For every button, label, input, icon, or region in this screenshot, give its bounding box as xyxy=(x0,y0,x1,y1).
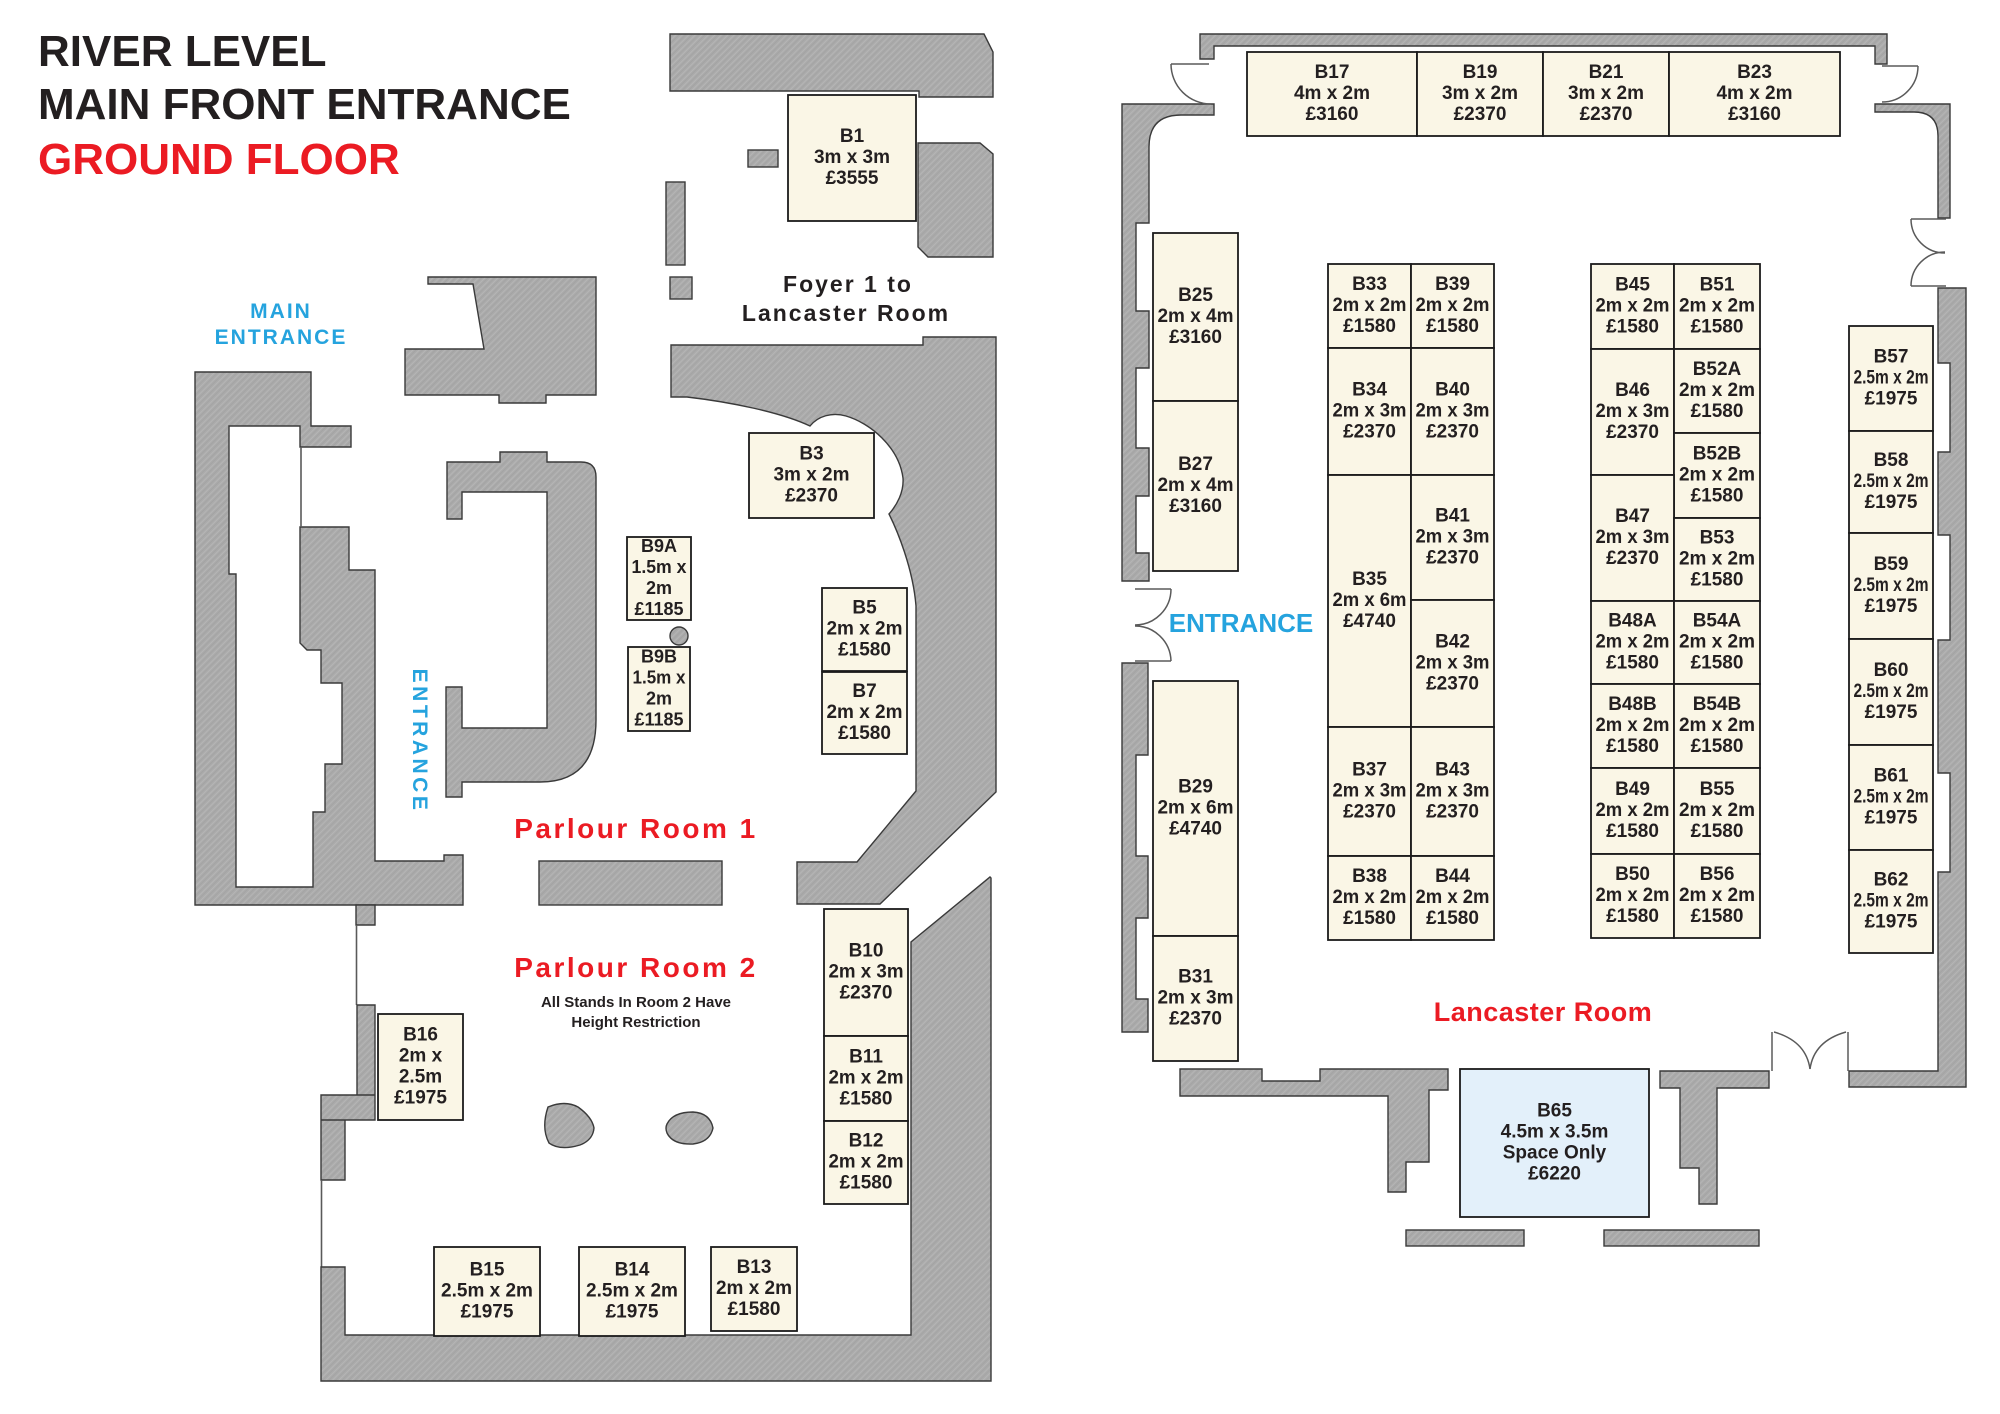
svg-text:£1580: £1580 xyxy=(840,1089,893,1110)
svg-text:B14: B14 xyxy=(615,1260,650,1281)
svg-text:2.5m x 2m: 2.5m x 2m xyxy=(441,1281,533,1302)
svg-text:B34: B34 xyxy=(1352,380,1387,401)
svg-text:2m x 3m: 2m x 3m xyxy=(1333,401,1407,422)
svg-text:2m x 2m: 2m x 2m xyxy=(826,702,902,723)
svg-text:4m x 2m: 4m x 2m xyxy=(1294,83,1370,104)
svg-text:£3160: £3160 xyxy=(1169,496,1222,517)
svg-text:£1975: £1975 xyxy=(461,1302,514,1323)
svg-text:2.5m x 2m: 2.5m x 2m xyxy=(1854,471,1929,492)
svg-text:3m x 3m: 3m x 3m xyxy=(814,147,890,168)
svg-text:2m x 2m: 2m x 2m xyxy=(1596,800,1670,821)
svg-text:B46: B46 xyxy=(1615,380,1650,401)
svg-text:RIVER LEVEL: RIVER LEVEL xyxy=(38,27,327,76)
svg-text:B37: B37 xyxy=(1352,760,1387,781)
svg-text:B13: B13 xyxy=(737,1257,772,1278)
svg-text:B17: B17 xyxy=(1315,62,1350,83)
svg-text:2m x 2m: 2m x 2m xyxy=(1679,549,1755,570)
svg-text:B60: B60 xyxy=(1874,660,1909,681)
svg-text:2.5m x 2m: 2.5m x 2m xyxy=(1854,787,1929,808)
svg-text:B21: B21 xyxy=(1589,62,1624,83)
svg-text:£6220: £6220 xyxy=(1528,1164,1581,1185)
svg-text:£1580: £1580 xyxy=(1343,316,1396,337)
svg-text:ENTRANCE: ENTRANCE xyxy=(408,669,431,814)
svg-text:3m x 2m: 3m x 2m xyxy=(773,465,849,486)
svg-text:MAIN FRONT ENTRANCE: MAIN FRONT ENTRANCE xyxy=(38,80,571,129)
svg-text:£1580: £1580 xyxy=(1691,906,1744,927)
svg-text:£1975: £1975 xyxy=(394,1088,447,1109)
svg-text:1.5m x: 1.5m x xyxy=(632,557,687,577)
svg-text:£2370: £2370 xyxy=(1426,802,1479,823)
svg-text:£1580: £1580 xyxy=(1691,317,1744,338)
svg-text:B16: B16 xyxy=(403,1025,438,1046)
svg-text:£1580: £1580 xyxy=(1691,821,1744,842)
svg-text:B57: B57 xyxy=(1874,347,1909,368)
svg-text:£2370: £2370 xyxy=(1426,422,1479,443)
svg-text:£1580: £1580 xyxy=(728,1299,781,1320)
svg-text:4.5m x 3.5m: 4.5m x 3.5m xyxy=(1501,1122,1609,1143)
svg-text:B9B: B9B xyxy=(641,646,677,666)
svg-text:£1580: £1580 xyxy=(1606,821,1659,842)
svg-text:£2370: £2370 xyxy=(1580,104,1633,125)
svg-text:£1975: £1975 xyxy=(1865,912,1918,933)
svg-text:2.5m: 2.5m xyxy=(399,1067,442,1088)
svg-text:2m x 2m: 2m x 2m xyxy=(1596,632,1670,653)
svg-text:£1580: £1580 xyxy=(1343,908,1396,929)
svg-text:MAIN: MAIN xyxy=(250,300,312,323)
svg-text:B33: B33 xyxy=(1352,274,1387,295)
svg-text:B58: B58 xyxy=(1874,450,1909,471)
svg-text:B31: B31 xyxy=(1178,967,1213,988)
svg-text:£3160: £3160 xyxy=(1728,104,1781,125)
svg-text:B50: B50 xyxy=(1615,864,1650,885)
svg-text:2m x 2m: 2m x 2m xyxy=(1679,715,1755,736)
svg-text:2m x 4m: 2m x 4m xyxy=(1157,475,1233,496)
svg-text:2m x 2m: 2m x 2m xyxy=(829,1152,904,1173)
svg-text:B10: B10 xyxy=(849,941,884,962)
svg-text:Foyer 1 to: Foyer 1 to xyxy=(783,271,913,297)
svg-text:B51: B51 xyxy=(1700,275,1735,296)
svg-text:B49: B49 xyxy=(1615,779,1650,800)
svg-text:ENTRANCE: ENTRANCE xyxy=(215,326,348,349)
svg-text:£2370: £2370 xyxy=(1606,422,1659,443)
svg-text:2m x 2m: 2m x 2m xyxy=(1679,632,1755,653)
svg-text:2m x 2m: 2m x 2m xyxy=(1416,295,1490,316)
svg-text:2.5m x 2m: 2.5m x 2m xyxy=(1854,681,1929,702)
svg-text:2m x 2m: 2m x 2m xyxy=(1679,800,1755,821)
svg-text:£1185: £1185 xyxy=(634,599,683,619)
svg-text:2m x 3m: 2m x 3m xyxy=(829,962,904,983)
svg-text:£3160: £3160 xyxy=(1306,104,1359,125)
svg-text:£2370: £2370 xyxy=(1454,104,1507,125)
svg-text:B52B: B52B xyxy=(1693,444,1742,465)
svg-text:£2370: £2370 xyxy=(785,486,838,507)
svg-text:B5: B5 xyxy=(852,598,877,619)
svg-text:2m x 3m: 2m x 3m xyxy=(1596,527,1670,548)
svg-text:£1580: £1580 xyxy=(838,640,891,661)
svg-text:2m x 2m: 2m x 2m xyxy=(829,1068,904,1089)
svg-text:B1: B1 xyxy=(840,126,865,147)
svg-text:2m: 2m xyxy=(646,578,672,598)
svg-text:2.5m x 2m: 2.5m x 2m xyxy=(586,1281,678,1302)
svg-text:Parlour Room 1: Parlour Room 1 xyxy=(514,813,757,844)
svg-text:2m x: 2m x xyxy=(399,1046,443,1067)
svg-text:£3555: £3555 xyxy=(826,168,879,189)
svg-text:B19: B19 xyxy=(1463,62,1498,83)
svg-text:3m x 2m: 3m x 2m xyxy=(1442,83,1518,104)
svg-text:ENTRANCE: ENTRANCE xyxy=(1169,608,1313,638)
svg-text:B40: B40 xyxy=(1435,380,1470,401)
svg-text:2m x 2m: 2m x 2m xyxy=(1596,885,1670,906)
svg-text:2m x 3m: 2m x 3m xyxy=(1333,781,1407,802)
svg-text:£1580: £1580 xyxy=(1606,317,1659,338)
svg-text:2m x 6m: 2m x 6m xyxy=(1157,798,1233,819)
svg-text:2m x 3m: 2m x 3m xyxy=(1416,401,1490,422)
svg-text:£1975: £1975 xyxy=(1865,808,1918,829)
svg-text:2m x 3m: 2m x 3m xyxy=(1596,401,1670,422)
svg-text:Lancaster Room: Lancaster Room xyxy=(1434,997,1653,1027)
svg-text:£3160: £3160 xyxy=(1169,327,1222,348)
svg-text:£1580: £1580 xyxy=(840,1173,893,1194)
svg-text:B43: B43 xyxy=(1435,760,1470,781)
svg-text:2.5m x 2m: 2.5m x 2m xyxy=(1854,891,1929,912)
svg-text:B48A: B48A xyxy=(1608,611,1657,632)
svg-text:B35: B35 xyxy=(1352,569,1387,590)
svg-text:B9A: B9A xyxy=(641,536,677,556)
svg-text:B45: B45 xyxy=(1615,275,1650,296)
svg-text:B15: B15 xyxy=(470,1260,505,1281)
svg-text:B39: B39 xyxy=(1435,274,1470,295)
svg-text:£1580: £1580 xyxy=(1691,401,1744,422)
svg-text:2m x 3m: 2m x 3m xyxy=(1157,988,1233,1009)
svg-text:B55: B55 xyxy=(1700,779,1735,800)
svg-text:B48B: B48B xyxy=(1608,694,1657,715)
svg-text:£1975: £1975 xyxy=(606,1302,659,1323)
svg-text:2m x 2m: 2m x 2m xyxy=(716,1278,792,1299)
svg-text:2.5m x 2m: 2.5m x 2m xyxy=(1854,368,1929,389)
svg-text:£4740: £4740 xyxy=(1343,611,1396,632)
svg-text:2m x 2m: 2m x 2m xyxy=(1679,296,1755,317)
svg-text:£1580: £1580 xyxy=(1691,736,1744,757)
svg-text:B42: B42 xyxy=(1435,632,1470,653)
svg-text:£2370: £2370 xyxy=(1606,548,1659,569)
svg-text:£1580: £1580 xyxy=(1426,316,1479,337)
svg-text:£1580: £1580 xyxy=(1691,653,1744,674)
svg-text:B23: B23 xyxy=(1737,62,1772,83)
svg-text:£1975: £1975 xyxy=(1865,389,1918,410)
svg-text:4m x 2m: 4m x 2m xyxy=(1716,83,1792,104)
svg-text:B62: B62 xyxy=(1874,870,1909,891)
svg-text:£1580: £1580 xyxy=(1426,908,1479,929)
svg-text:B61: B61 xyxy=(1874,766,1909,787)
svg-text:£1580: £1580 xyxy=(1606,906,1659,927)
svg-text:£1975: £1975 xyxy=(1865,596,1918,617)
svg-text:2m x 2m: 2m x 2m xyxy=(1333,295,1407,316)
svg-text:B56: B56 xyxy=(1700,864,1735,885)
svg-text:B3: B3 xyxy=(799,444,823,465)
svg-text:B41: B41 xyxy=(1435,506,1470,527)
svg-text:B59: B59 xyxy=(1874,554,1909,575)
svg-text:B52A: B52A xyxy=(1693,359,1742,380)
svg-text:£4740: £4740 xyxy=(1169,819,1222,840)
svg-text:£2370: £2370 xyxy=(1169,1009,1222,1030)
svg-text:B12: B12 xyxy=(849,1131,884,1152)
svg-text:£2370: £2370 xyxy=(1343,802,1396,823)
svg-text:£1580: £1580 xyxy=(1606,736,1659,757)
svg-text:2m x 2m: 2m x 2m xyxy=(1679,885,1755,906)
svg-text:2m x 4m: 2m x 4m xyxy=(1157,306,1233,327)
svg-text:2m x 3m: 2m x 3m xyxy=(1416,527,1490,548)
svg-text:B38: B38 xyxy=(1352,866,1387,887)
svg-text:£2370: £2370 xyxy=(1343,422,1396,443)
svg-text:B44: B44 xyxy=(1435,866,1470,887)
svg-text:B29: B29 xyxy=(1178,777,1213,798)
svg-text:B53: B53 xyxy=(1700,528,1735,549)
svg-text:2m x 2m: 2m x 2m xyxy=(1596,715,1670,736)
svg-text:B47: B47 xyxy=(1615,506,1650,527)
svg-text:Parlour Room 2: Parlour Room 2 xyxy=(514,952,757,983)
svg-text:2.5m x 2m: 2.5m x 2m xyxy=(1854,575,1929,596)
svg-text:2m x 2m: 2m x 2m xyxy=(1596,296,1670,317)
svg-text:2m x 2m: 2m x 2m xyxy=(826,619,902,640)
svg-text:£1975: £1975 xyxy=(1865,492,1918,513)
svg-text:B25: B25 xyxy=(1178,285,1213,306)
svg-text:B54A: B54A xyxy=(1693,611,1742,632)
svg-text:2m x 6m: 2m x 6m xyxy=(1333,590,1407,611)
svg-text:Space Only: Space Only xyxy=(1503,1143,1607,1164)
svg-text:B65: B65 xyxy=(1537,1101,1572,1122)
svg-text:2m x 2m: 2m x 2m xyxy=(1416,887,1490,908)
svg-text:B54B: B54B xyxy=(1693,694,1742,715)
svg-text:Lancaster Room: Lancaster Room xyxy=(742,300,950,326)
svg-text:£2370: £2370 xyxy=(1426,548,1479,569)
svg-text:B7: B7 xyxy=(852,681,876,702)
svg-text:Height Restriction: Height Restriction xyxy=(571,1014,700,1031)
svg-text:1.5m x: 1.5m x xyxy=(633,667,686,687)
svg-text:3m x 2m: 3m x 2m xyxy=(1568,83,1644,104)
svg-text:2m: 2m xyxy=(646,688,672,708)
svg-text:£2370: £2370 xyxy=(1426,674,1479,695)
svg-text:£1580: £1580 xyxy=(1691,486,1744,507)
svg-text:2m x 2m: 2m x 2m xyxy=(1679,380,1755,401)
svg-text:£2370: £2370 xyxy=(840,983,893,1004)
svg-text:B27: B27 xyxy=(1178,454,1213,475)
svg-text:2m x 3m: 2m x 3m xyxy=(1416,653,1490,674)
svg-text:B11: B11 xyxy=(849,1047,883,1068)
svg-text:GROUND FLOOR: GROUND FLOOR xyxy=(38,135,400,184)
svg-text:£1185: £1185 xyxy=(634,709,683,729)
svg-text:£1580: £1580 xyxy=(838,723,891,744)
svg-text:2m x 2m: 2m x 2m xyxy=(1333,887,1407,908)
svg-text:2m x 2m: 2m x 2m xyxy=(1679,465,1755,486)
svg-text:All Stands In Room 2 Have: All Stands In Room 2 Have xyxy=(541,994,731,1011)
svg-text:£1580: £1580 xyxy=(1606,653,1659,674)
svg-text:£1975: £1975 xyxy=(1865,702,1918,723)
svg-text:£1580: £1580 xyxy=(1691,570,1744,591)
svg-text:2m x 3m: 2m x 3m xyxy=(1416,781,1490,802)
